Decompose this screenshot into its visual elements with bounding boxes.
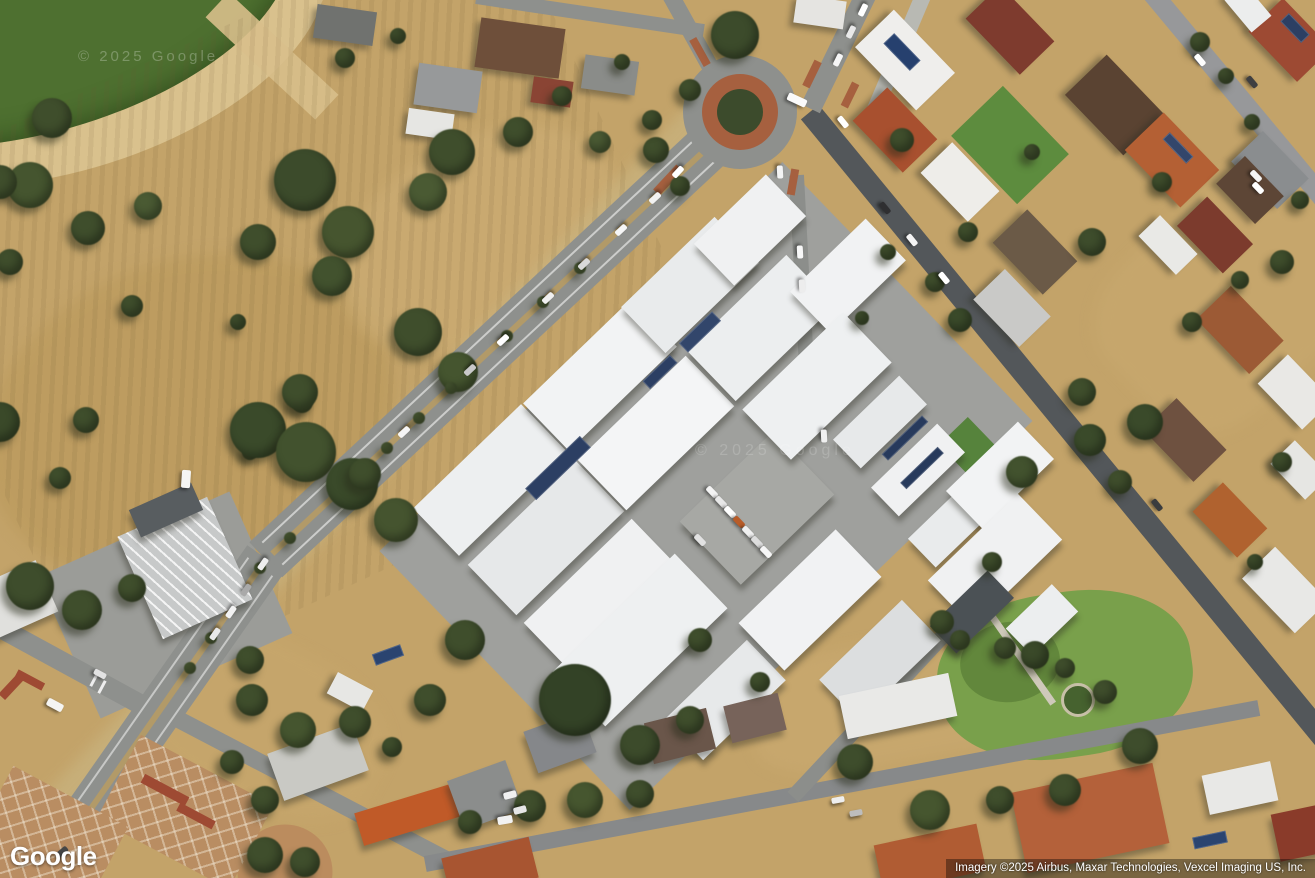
house [1202, 761, 1279, 815]
car [1246, 75, 1259, 89]
tree [390, 28, 406, 44]
tree [230, 314, 246, 330]
imagery-attribution: Imagery ©2025 Airbus, Maxar Technologies… [946, 859, 1315, 878]
tree [552, 86, 572, 106]
tree [1078, 228, 1106, 256]
tree [251, 786, 279, 814]
tree [247, 837, 283, 873]
tree [1122, 728, 1158, 764]
tree [1021, 641, 1049, 669]
tree [414, 684, 446, 716]
tree [382, 737, 402, 757]
tree [890, 128, 914, 152]
house [581, 54, 639, 95]
tree [1074, 424, 1106, 456]
tree [134, 192, 162, 220]
tree [121, 295, 143, 317]
tree [958, 222, 978, 242]
car [849, 809, 863, 817]
tree [413, 412, 425, 424]
house [413, 63, 482, 113]
house [1011, 763, 1170, 873]
tree [982, 552, 1002, 572]
brick-island [841, 82, 860, 109]
tree [1024, 144, 1040, 160]
tree [429, 129, 475, 175]
tree [282, 374, 318, 410]
tree [312, 256, 352, 296]
tree [32, 98, 72, 138]
tree [1006, 456, 1038, 488]
tree [280, 712, 316, 748]
tree [986, 786, 1014, 814]
tree [184, 662, 196, 674]
red-median [0, 672, 26, 700]
car [777, 165, 784, 178]
tree [335, 48, 355, 68]
tree [394, 308, 442, 356]
tree [381, 442, 393, 454]
tree [6, 562, 54, 610]
tree [445, 382, 457, 394]
tree [445, 620, 485, 660]
tree [614, 54, 630, 70]
tree [1108, 470, 1132, 494]
tree [1127, 404, 1163, 440]
tree [1291, 191, 1309, 209]
tree [339, 706, 371, 738]
tree [948, 308, 972, 332]
solar-panel-icon [372, 644, 404, 666]
car [46, 697, 65, 712]
tree [118, 574, 146, 602]
tree [1049, 774, 1081, 806]
tree [1152, 172, 1172, 192]
tree [539, 664, 611, 736]
tree [1055, 658, 1075, 678]
tree [930, 610, 954, 634]
tree [1182, 312, 1202, 332]
tree [642, 110, 662, 130]
tree [322, 206, 374, 258]
tree [679, 79, 701, 101]
tree [711, 11, 759, 59]
car [831, 796, 845, 804]
tree [220, 750, 244, 774]
tree [274, 149, 336, 211]
tree [626, 780, 654, 808]
car [837, 115, 850, 129]
car [497, 815, 513, 825]
tree [284, 532, 296, 544]
tree [688, 628, 712, 652]
tree [1231, 271, 1249, 289]
tree [837, 744, 873, 780]
tree [71, 211, 105, 245]
tree [1068, 378, 1096, 406]
car [821, 429, 828, 442]
house [793, 0, 846, 29]
car [799, 279, 806, 292]
tree [567, 782, 603, 818]
tree [670, 176, 690, 196]
tree [236, 646, 264, 674]
tree [1270, 250, 1294, 274]
google-watermark: © 2025 Google [695, 442, 855, 460]
tree [374, 498, 418, 542]
tree [1272, 452, 1292, 472]
google-watermark: © 2025 Google [78, 48, 218, 65]
google-logo[interactable]: Google [10, 841, 97, 872]
tree [49, 467, 71, 489]
park-ring-feature [1061, 683, 1095, 717]
tree [855, 311, 869, 325]
tree [676, 706, 704, 734]
tree [589, 131, 611, 153]
tree [910, 790, 950, 830]
roundabout-centre-trees [717, 89, 763, 135]
tree [73, 407, 99, 433]
tree [1247, 554, 1263, 570]
solar-panel-icon [1192, 831, 1228, 850]
car [181, 470, 191, 489]
tree [950, 630, 970, 650]
tree [1244, 114, 1260, 130]
tree [880, 244, 896, 260]
house [1271, 802, 1315, 861]
tree [290, 847, 320, 877]
tree [994, 637, 1016, 659]
car [797, 245, 804, 258]
tree [236, 684, 268, 716]
tree [1218, 68, 1234, 84]
tree [643, 137, 669, 163]
tree [503, 117, 533, 147]
tree [1093, 680, 1117, 704]
tree [1190, 32, 1210, 52]
tree [409, 173, 447, 211]
tree [349, 458, 381, 490]
car [1151, 498, 1164, 512]
tree [240, 224, 276, 260]
tree [458, 810, 482, 834]
satellite-map[interactable]: © 2025 Google © 2025 Google Google Image… [0, 0, 1315, 878]
tree [750, 672, 770, 692]
tree [620, 725, 660, 765]
house [966, 0, 1055, 75]
tree [62, 590, 102, 630]
house [1193, 482, 1268, 557]
